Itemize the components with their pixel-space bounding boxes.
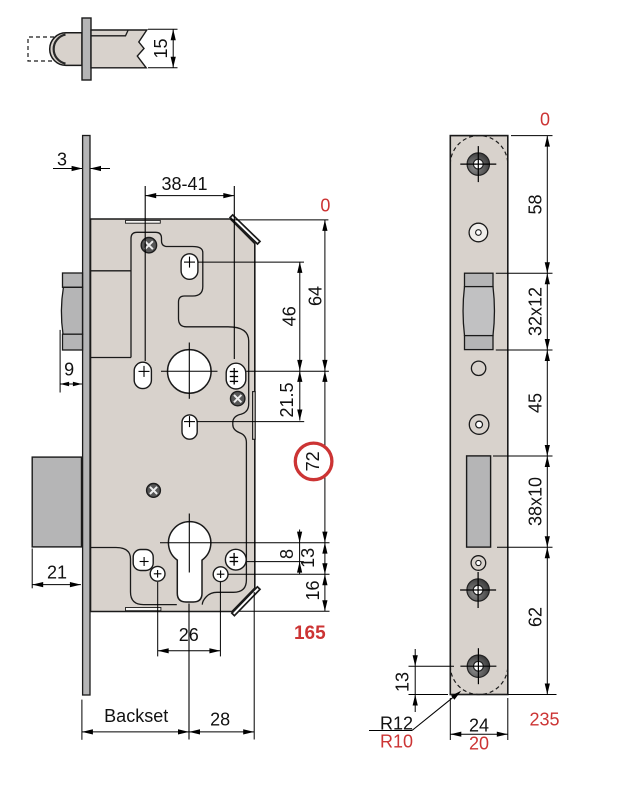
svg-text:Backset: Backset (104, 706, 168, 726)
svg-text:0: 0 (320, 196, 330, 216)
svg-text:R10: R10 (380, 732, 413, 752)
svg-text:24: 24 (469, 715, 489, 735)
svg-text:38x10: 38x10 (526, 477, 546, 526)
svg-text:R12: R12 (380, 714, 413, 734)
svg-text:165: 165 (294, 623, 326, 644)
svg-text:21: 21 (47, 563, 67, 583)
svg-text:58: 58 (526, 194, 546, 214)
svg-text:64: 64 (305, 286, 325, 306)
svg-text:3: 3 (57, 150, 67, 170)
svg-text:16: 16 (303, 580, 323, 600)
svg-text:38-41: 38-41 (161, 174, 207, 194)
svg-text:46: 46 (279, 306, 299, 326)
svg-text:28: 28 (210, 709, 230, 729)
svg-text:21.5: 21.5 (277, 382, 297, 417)
svg-text:32x12: 32x12 (526, 287, 546, 336)
svg-text:26: 26 (179, 625, 199, 645)
svg-text:15: 15 (151, 38, 171, 58)
svg-text:62: 62 (526, 607, 546, 627)
svg-text:20: 20 (469, 734, 489, 754)
svg-text:8: 8 (277, 549, 297, 559)
svg-text:72: 72 (303, 451, 323, 471)
svg-text:45: 45 (526, 393, 546, 413)
svg-text:13: 13 (298, 548, 318, 568)
svg-text:9: 9 (64, 359, 74, 379)
svg-text:13: 13 (393, 672, 413, 692)
svg-text:235: 235 (529, 710, 559, 730)
svg-text:0: 0 (540, 110, 550, 130)
